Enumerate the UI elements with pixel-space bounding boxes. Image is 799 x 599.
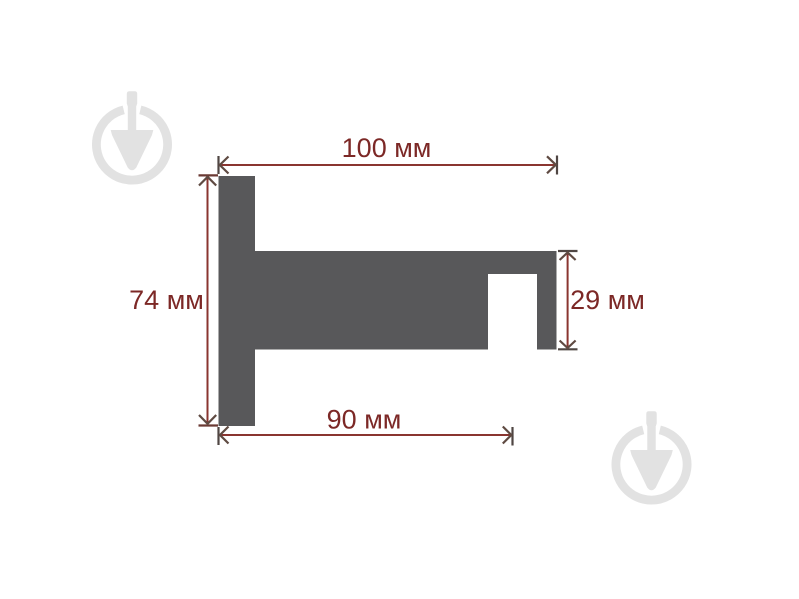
- svg-text:74 мм: 74 мм: [129, 285, 204, 315]
- svg-text:29 мм: 29 мм: [570, 285, 645, 315]
- svg-text:100 мм: 100 мм: [342, 133, 432, 163]
- svg-text:90 мм: 90 мм: [327, 405, 402, 435]
